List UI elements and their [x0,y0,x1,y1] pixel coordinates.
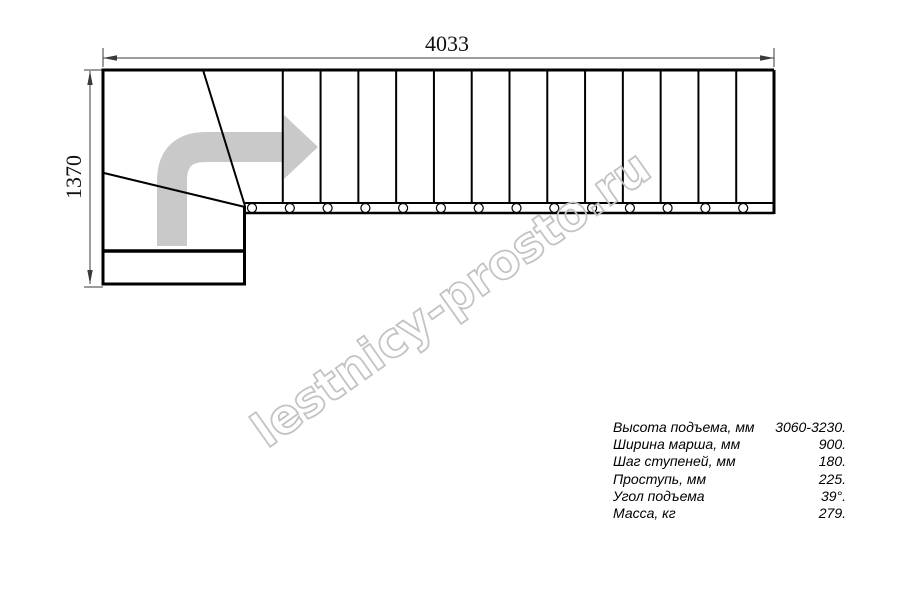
spec-value: 3060-3230. [775,419,846,436]
watermark: lestnicy-prosto.ru [242,139,661,459]
spec-label: Ширина марша, мм [613,436,740,453]
spec-value: 279. [819,505,846,522]
dim-arrow-right-icon [760,55,774,60]
spec-label: Угол подъема [613,488,705,505]
spec-label: Шаг ступеней, мм [613,453,736,470]
spec-value: 225. [819,471,846,488]
baluster-circle [739,204,748,213]
spec-row: Угол подъема39°. [613,488,846,505]
spec-label: Масса, кг [613,505,676,522]
width-dimension-label: 4033 [425,31,469,56]
tread-lines [283,70,736,203]
spec-row: Проступь, мм225. [613,471,846,488]
baluster-circle [663,204,672,213]
baluster-circle [285,204,294,213]
spec-value: 180. [819,453,846,470]
baluster-circle [436,204,445,213]
spec-row: Шаг ступеней, мм180. [613,453,846,470]
baluster-circle [474,204,483,213]
dim-arrow-up-icon [87,71,92,85]
baluster-circles [248,204,748,213]
baluster-circle [399,204,408,213]
baluster-circle [512,204,521,213]
spec-row: Высота подъема, мм3060-3230. [613,419,846,436]
stair-outline [102,69,775,286]
spec-row: Ширина марша, мм900. [613,436,846,453]
dim-arrow-down-icon [87,270,92,284]
specs-table: Высота подъема, мм3060-3230.Ширина марша… [613,419,846,522]
dim-arrow-left-icon [103,55,117,60]
baluster-circle [248,204,257,213]
spec-row: Масса, кг279. [613,505,846,522]
baluster-circle [323,204,332,213]
spec-label: Высота подъема, мм [613,419,755,436]
spec-value: 39°. [821,488,846,505]
drawing-sheet: 4033 1370 [0,0,900,600]
dimension-left [84,70,103,287]
baluster-circle [361,204,370,213]
height-dimension-label: 1370 [61,155,86,199]
spec-value: 900. [819,436,846,453]
baluster-circle [701,204,710,213]
spec-label: Проступь, мм [613,471,706,488]
